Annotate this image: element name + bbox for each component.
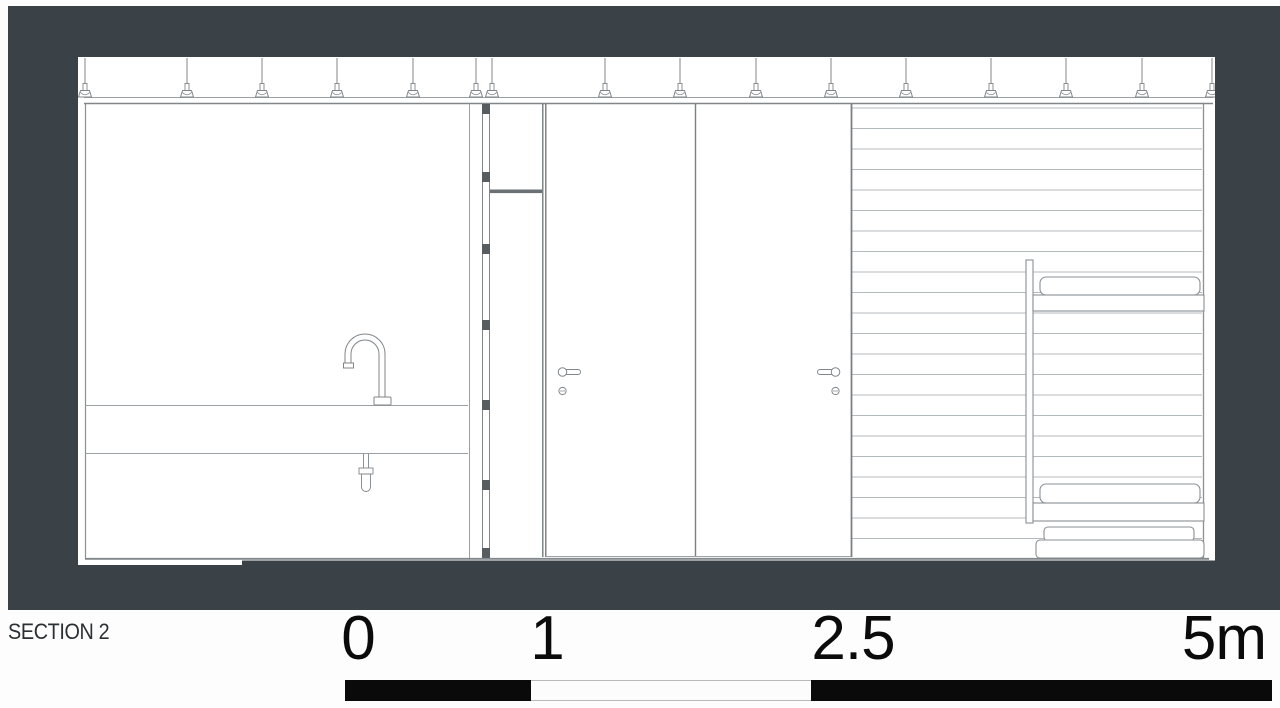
scale-label-1: 1 <box>530 608 563 670</box>
ceiling-hanger-icon <box>674 58 687 97</box>
drain-body <box>362 474 371 492</box>
handle-rosette <box>558 368 567 377</box>
wall-stud <box>482 320 490 330</box>
scale-label-2-5: 2.5 <box>811 608 894 670</box>
bed-step-lower <box>1036 540 1204 558</box>
ceiling-hanger-icon <box>331 58 344 97</box>
top-bunk-platform <box>1033 295 1204 311</box>
ceiling-hanger-icon <box>900 58 913 97</box>
suspended-ceiling <box>84 98 1213 104</box>
ceiling-hanger-icon <box>1060 58 1073 97</box>
ceiling-hanger-icon <box>79 58 92 97</box>
ceiling-hanger-icon <box>1206 58 1216 97</box>
drain-trap <box>359 454 373 492</box>
scale-segment-1-2.5 <box>531 680 811 701</box>
ceiling-hanger-icon <box>407 58 420 97</box>
scale-label-0: 0 <box>341 608 374 670</box>
faucet-spout-tip <box>344 363 354 368</box>
scale-label-5m: 5m <box>1182 608 1266 670</box>
ceiling-hanger-icon <box>750 58 763 97</box>
floor-slab-poche <box>242 561 1215 566</box>
wall-stud <box>482 400 490 410</box>
scale-bar <box>345 680 1272 701</box>
bottom-bunk-mattress <box>1040 484 1200 503</box>
faucet-inner <box>351 340 379 399</box>
doors <box>543 104 852 557</box>
faucet-base <box>374 397 391 405</box>
door-handle-right <box>818 368 840 395</box>
wall-stud <box>482 480 490 490</box>
wall-stud <box>482 172 490 182</box>
bunk-bed <box>1026 260 1204 558</box>
handle-rosette <box>831 368 840 377</box>
partition-wall <box>470 104 543 558</box>
bunk-bed-post <box>1026 260 1033 523</box>
section-drawing <box>78 57 1215 565</box>
ceiling-hangers <box>79 58 1216 97</box>
scale-segment-2.5-5 <box>811 680 1272 701</box>
ceiling-hanger-icon <box>486 58 499 97</box>
wall-stud <box>482 104 490 114</box>
ceiling-hanger-icon <box>1136 58 1149 97</box>
faucet <box>344 334 392 405</box>
bottom-bunk-platform <box>1033 503 1204 521</box>
ceiling-hanger-icon <box>181 58 194 97</box>
scale-segment-0-1 <box>345 680 531 701</box>
ceiling-hanger-icon <box>256 58 269 97</box>
door-handle-left <box>558 368 580 395</box>
washbasin-counter <box>85 406 468 454</box>
footer: SECTION 2 0 1 2.5 5m <box>0 610 1280 708</box>
wall-stud <box>482 548 490 558</box>
wall-stud <box>482 244 490 254</box>
drawing-title: SECTION 2 <box>8 621 109 643</box>
ceiling-hanger-icon <box>985 58 998 97</box>
ceiling-hanger-icon <box>470 58 483 97</box>
wall-blocking <box>482 104 490 558</box>
bed-step-upper <box>1044 527 1194 541</box>
drain-collar <box>359 468 373 474</box>
ceiling-hanger-icon <box>825 58 838 97</box>
ceiling-hanger-icon <box>599 58 612 97</box>
top-bunk-mattress <box>1040 277 1200 295</box>
closet-shelf-rail <box>490 190 542 194</box>
